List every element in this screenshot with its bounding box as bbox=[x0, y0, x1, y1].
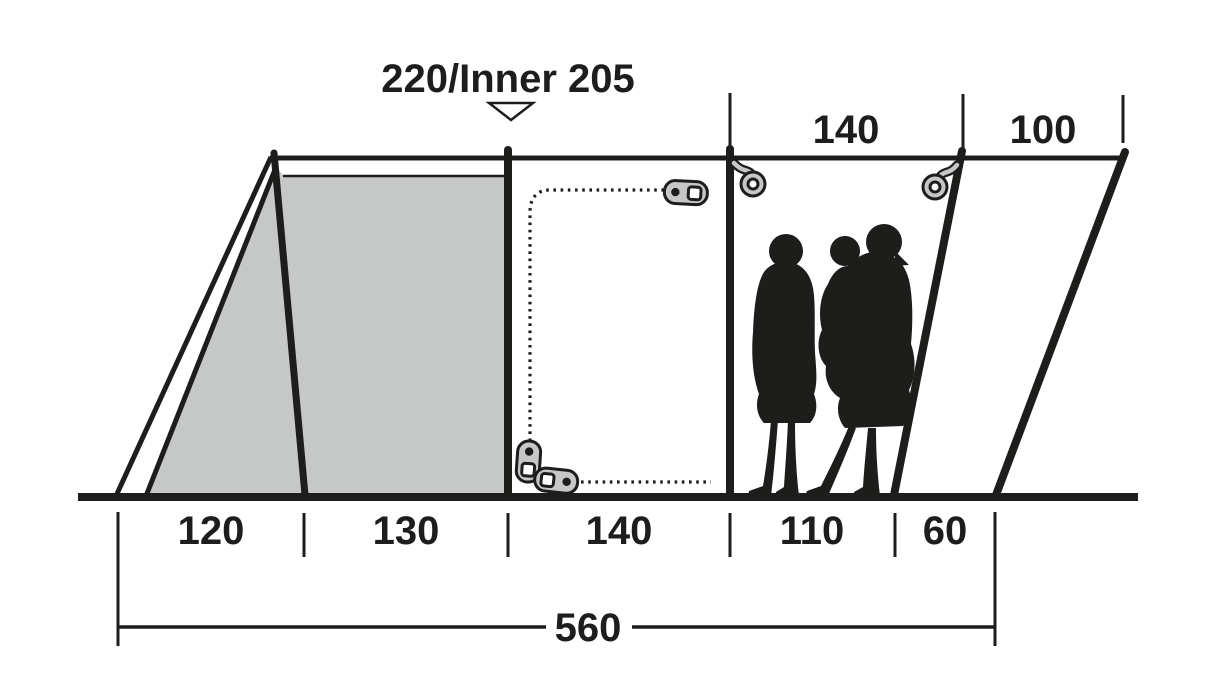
ring-hook-icon bbox=[734, 163, 765, 196]
dimension-label-top-1: 140 bbox=[813, 108, 880, 152]
zipper-pull-icon bbox=[664, 180, 708, 205]
down-triangle-icon bbox=[489, 103, 533, 120]
family-silhouette bbox=[748, 224, 915, 496]
zipper-pull-icon bbox=[534, 467, 579, 494]
door-outline bbox=[516, 180, 711, 494]
dimension-label-bottom-2: 130 bbox=[373, 509, 440, 553]
height-label: 220/Inner 205 bbox=[381, 57, 635, 101]
dimension-label-top-2: 100 bbox=[1010, 108, 1077, 152]
diagram-canvas: 220/Inner 205 bbox=[0, 0, 1230, 693]
right-wall bbox=[996, 152, 1125, 495]
dimension-label-total: 560 bbox=[555, 606, 622, 650]
dimension-label-bottom-4: 110 bbox=[780, 509, 845, 553]
tent-dimension-diagram: 220/Inner 205 bbox=[0, 0, 1230, 693]
dimension-label-bottom-5: 60 bbox=[923, 509, 968, 553]
dimension-label-bottom-3: 140 bbox=[586, 509, 653, 553]
inner-tent-area bbox=[148, 168, 508, 495]
dimension-label-bottom-1: 120 bbox=[178, 509, 245, 553]
